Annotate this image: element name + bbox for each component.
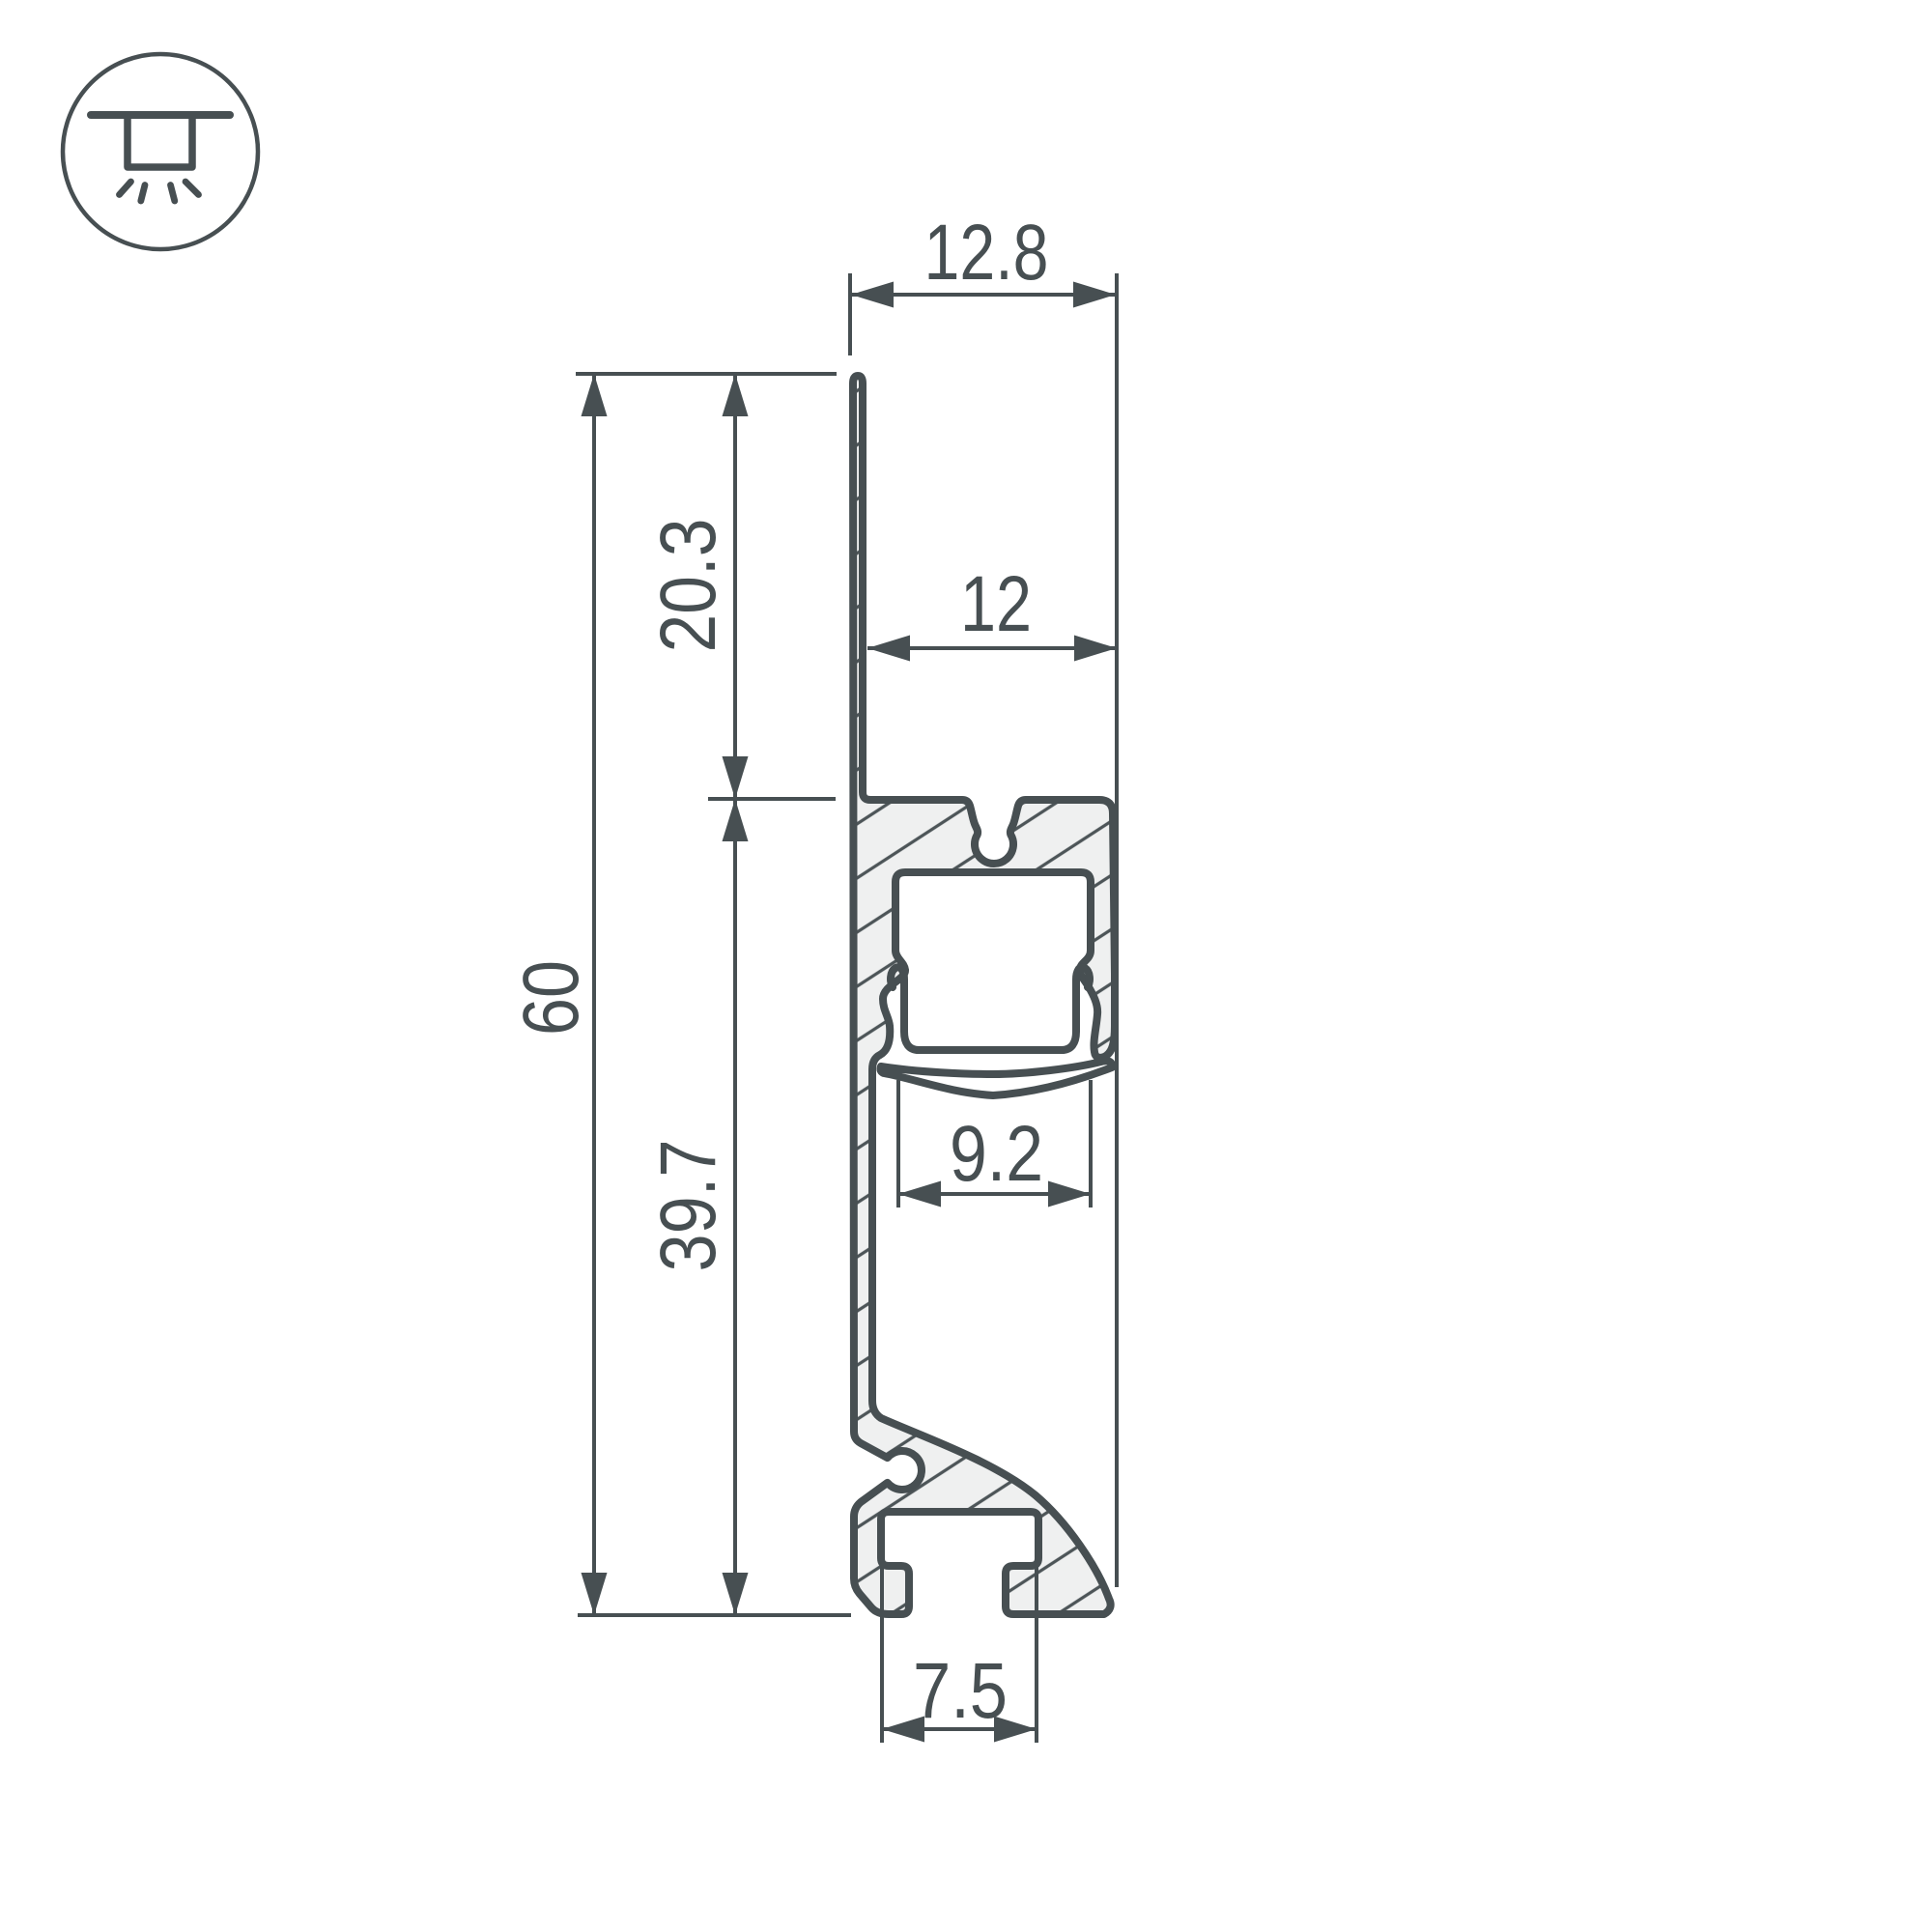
svg-text:60: 60 — [507, 960, 595, 1036]
svg-text:12: 12 — [960, 560, 1032, 648]
svg-text:9.2: 9.2 — [950, 1110, 1043, 1198]
svg-text:39.7: 39.7 — [644, 1140, 732, 1272]
svg-text:20.3: 20.3 — [644, 519, 732, 653]
svg-text:12.8: 12.8 — [924, 209, 1049, 297]
svg-text:7.5: 7.5 — [913, 1647, 1008, 1735]
